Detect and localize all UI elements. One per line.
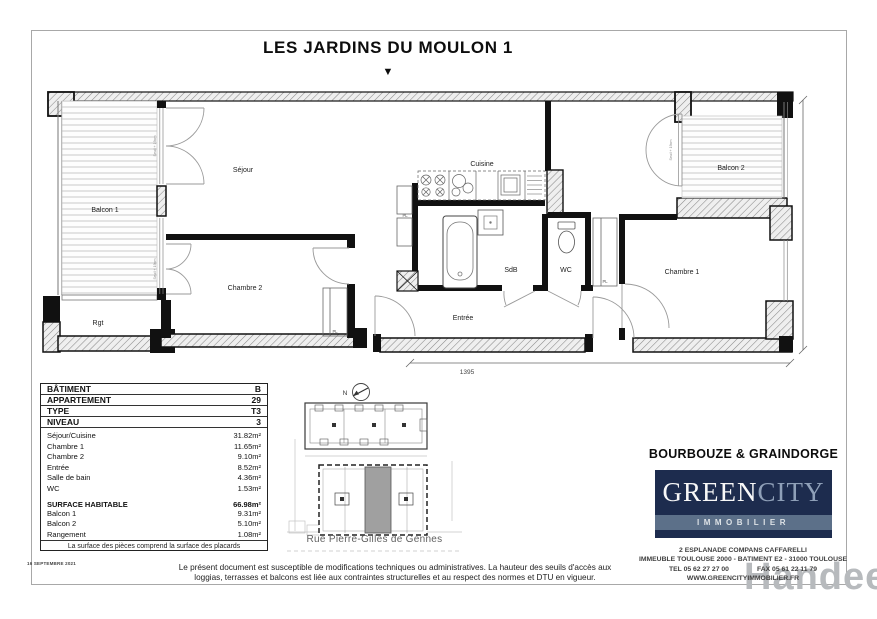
row-label: APPARTEMENT (47, 395, 111, 405)
fax-number: FAX 05 61 22 11 79 (757, 565, 817, 574)
floor-plan: 1395 547 Balcon 1 Rgt Séjour Chambre 2 C… (35, 86, 810, 381)
logo-bottom-strip (655, 530, 832, 538)
street-label: Rue Pierre-Gilles de Gennes (283, 534, 466, 545)
row-value: 31.82m² (233, 431, 261, 442)
disclaimer: Le présent document est susceptible de m… (140, 563, 650, 583)
balcony-2-deck (682, 102, 787, 198)
row-value: 4.36m² (238, 473, 261, 484)
address-line-2: IMMEUBLE TOULOUSE 2000 - BATIMENT E2 - 3… (623, 555, 863, 564)
contact-block: 2 ESPLANADE COMPANS CAFFARELLI IMMEUBLE … (623, 546, 863, 584)
site-plan: N (287, 381, 462, 553)
room-label-balcon1: Balcon 1 (91, 207, 118, 214)
row-label: BÂTIMENT (47, 384, 91, 394)
room-label-sdb: SdB (504, 267, 518, 274)
interior-walls (157, 101, 677, 340)
row-label: Entrée (47, 463, 69, 474)
row-value: 66.98m² (233, 500, 261, 509)
table-row-entree: Entrée 8.52m² (41, 463, 267, 474)
building-north (305, 403, 427, 449)
row-label: WC (47, 484, 60, 495)
architect-name: BOURBOUZE & GRAINDORGE (640, 447, 847, 461)
threshold-note-2: Seuil + 19cm (153, 259, 157, 280)
threshold-note-1: Seuil + 19cm (153, 136, 157, 157)
website-url: WWW.GREENCITYIMMOBILIER.FR (623, 574, 863, 583)
table-row-chambre1: Chambre 1 11.65m² (41, 442, 267, 453)
logo-city-text: CITY (758, 477, 825, 508)
table-row-balcon1: Balcon 1 9.31m² (41, 509, 267, 520)
address-line-1: 2 ESPLANADE COMPANS CAFFARELLI (623, 546, 863, 555)
row-value: 9.31m² (238, 509, 261, 520)
table-row-niveau: NIVEAU 3 (41, 417, 267, 428)
room-label-sejour: Séjour (233, 167, 254, 174)
table-row-type: TYPE T3 (41, 406, 267, 417)
table-row-batiment: BÂTIMENT B (41, 384, 267, 395)
row-label: Chambre 1 (47, 442, 84, 453)
row-value: 29 (252, 395, 261, 405)
row-value: 3 (256, 417, 261, 427)
logo-green-text: GREEN (663, 477, 758, 508)
north-arrow-icon (353, 384, 370, 401)
closet-label-pl-3: PL (402, 213, 408, 218)
logo-tagline-band: IMMOBILIER (655, 515, 832, 530)
north-label: N (343, 390, 348, 397)
row-label: Rangement (47, 530, 86, 541)
row-label: SURFACE HABITABLE (47, 500, 128, 509)
row-label: Balcon 1 (47, 509, 76, 520)
room-label-balcon2: Balcon 2 (717, 165, 744, 172)
table-footnote: La surface des pièces comprend la surfac… (41, 540, 267, 552)
row-value: 9.10m² (238, 452, 261, 463)
row-label: Séjour/Cuisine (47, 431, 96, 442)
balcony-1-deck (58, 101, 157, 300)
kitchen-sink-icon (501, 175, 520, 195)
row-value: 1.08m² (238, 530, 261, 541)
room-label-chambre1: Chambre 1 (665, 269, 700, 276)
disclaimer-line-1: Le présent document est susceptible de m… (140, 563, 650, 573)
page-title: LES JARDINS DU MOULON 1 (0, 38, 776, 58)
stove-burners-icon (421, 175, 445, 196)
table-row-sejour-cuisine: Séjour/Cuisine 31.82m² (41, 431, 267, 442)
threshold-note-3: Seuil + 19cm (669, 140, 673, 161)
triangle-marker-icon: ▼ (0, 66, 776, 78)
document-page: LES JARDINS DU MOULON 1 ▼ (0, 0, 877, 619)
row-value: 5.10m² (238, 519, 261, 530)
dimension-width: 1395 (460, 369, 475, 376)
room-label-chambre2: Chambre 2 (228, 285, 263, 292)
building-south (319, 465, 427, 535)
row-label: Salle de bain (47, 473, 90, 484)
room-label-wc: WC (560, 267, 572, 274)
toilet-icon (558, 222, 575, 253)
table-row-salle-de-bain: Salle de bain 4.36m² (41, 473, 267, 484)
info-table: BÂTIMENT B APPARTEMENT 29 TYPE T3 NIVEAU… (40, 383, 268, 551)
sink-bowls-icon (452, 175, 473, 197)
closet-label-pl-2: PL (602, 279, 608, 284)
highlighted-unit (365, 467, 391, 533)
drainer-icon (527, 176, 542, 194)
room-label-entree: Entrée (453, 315, 474, 322)
door-swings (166, 108, 682, 338)
row-value: B (255, 384, 261, 394)
disclaimer-line-2: loggias, terrasses et balcons est liée a… (140, 573, 650, 583)
row-value: 1.53m² (238, 484, 261, 495)
row-value: 11.65m² (234, 442, 261, 453)
phone-number: TEL 05 62 27 27 00 (669, 565, 729, 574)
table-row-balcon2: Balcon 2 5.10m² (41, 519, 267, 530)
kitchen-counter (418, 171, 545, 200)
table-row-rangement: Rangement 1.08m² (41, 530, 267, 541)
bathroom-fixtures (443, 210, 575, 288)
row-label: Balcon 2 (47, 519, 76, 530)
row-label: Chambre 2 (47, 452, 84, 463)
logo-wordmark: GREENCITY (655, 470, 832, 515)
row-value: T3 (251, 406, 261, 416)
room-label-rgt: Rgt (93, 320, 104, 327)
room-label-cuisine: Cuisine (470, 161, 493, 168)
row-label: TYPE (47, 406, 69, 416)
table-row-surface-habitable: SURFACE HABITABLE 66.98m² (41, 500, 267, 509)
table-row-appartement: APPARTEMENT 29 (41, 395, 267, 406)
row-value: 8.52m² (238, 463, 261, 474)
table-row-chambre2: Chambre 2 9.10m² (41, 452, 267, 463)
greencity-logo: GREENCITY IMMOBILIER (655, 470, 832, 538)
table-row-wc: WC 1.53m² (41, 484, 267, 495)
logo-tagline: IMMOBILIER (697, 518, 790, 527)
date-note: 16 SEPTEMBRE 2021 (27, 561, 76, 566)
closet-label-pl-1: PL (332, 329, 338, 334)
row-label: NIVEAU (47, 417, 79, 427)
